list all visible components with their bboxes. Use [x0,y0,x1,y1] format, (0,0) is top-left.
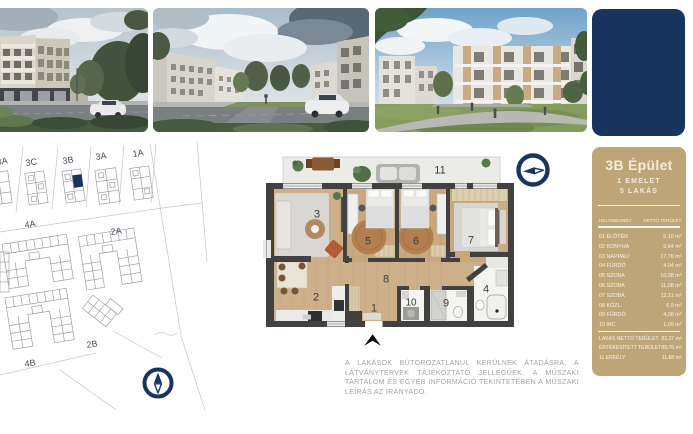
svg-text:2B: 2B [86,339,98,350]
svg-text:11: 11 [434,165,445,177]
svg-text:3C: 3C [25,156,38,168]
svg-text:10: 10 [405,298,417,309]
svg-text:1A: 1A [132,148,144,159]
svg-text:2: 2 [313,292,319,304]
svg-text:6: 6 [413,236,419,248]
svg-text:5: 5 [365,236,371,248]
svg-text:3A: 3A [0,156,8,167]
svg-text:4: 4 [483,284,489,296]
svg-text:3A: 3A [95,151,107,162]
svg-text:4B: 4B [24,358,36,369]
svg-text:8: 8 [383,274,389,286]
svg-text:7: 7 [468,235,474,247]
svg-text:3: 3 [314,209,320,221]
svg-text:2A: 2A [110,226,122,237]
svg-text:1: 1 [371,303,377,315]
svg-text:4A: 4A [24,219,36,230]
svg-text:9: 9 [443,298,449,310]
svg-text:3B: 3B [62,155,74,166]
